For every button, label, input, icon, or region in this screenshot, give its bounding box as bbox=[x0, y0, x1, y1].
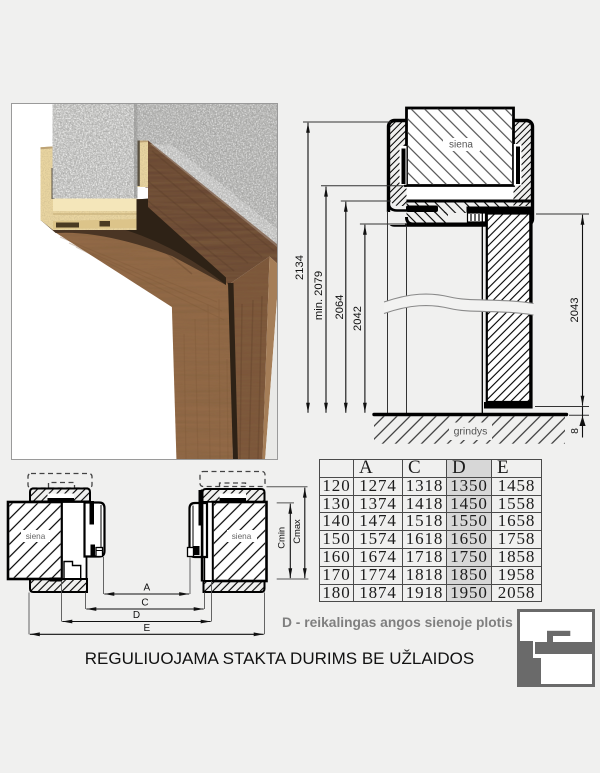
svg-text:Cmin: Cmin bbox=[276, 527, 287, 549]
svg-text:grindys: grindys bbox=[454, 426, 488, 438]
svg-text:2064: 2064 bbox=[334, 295, 346, 320]
svg-text:2042: 2042 bbox=[352, 306, 364, 331]
svg-text:min. 2079: min. 2079 bbox=[313, 271, 325, 320]
svg-text:C: C bbox=[141, 598, 148, 609]
svg-text:2134: 2134 bbox=[294, 255, 306, 280]
svg-text:8: 8 bbox=[570, 428, 581, 434]
svg-text:E: E bbox=[143, 623, 150, 634]
svg-text:siena: siena bbox=[232, 532, 252, 541]
svg-text:Cmax: Cmax bbox=[291, 519, 302, 544]
svg-text:2043: 2043 bbox=[569, 298, 581, 323]
svg-text:siena: siena bbox=[26, 532, 46, 541]
svg-text:A: A bbox=[143, 583, 150, 594]
svg-text:D: D bbox=[133, 610, 140, 621]
svg-text:siena: siena bbox=[449, 140, 473, 151]
